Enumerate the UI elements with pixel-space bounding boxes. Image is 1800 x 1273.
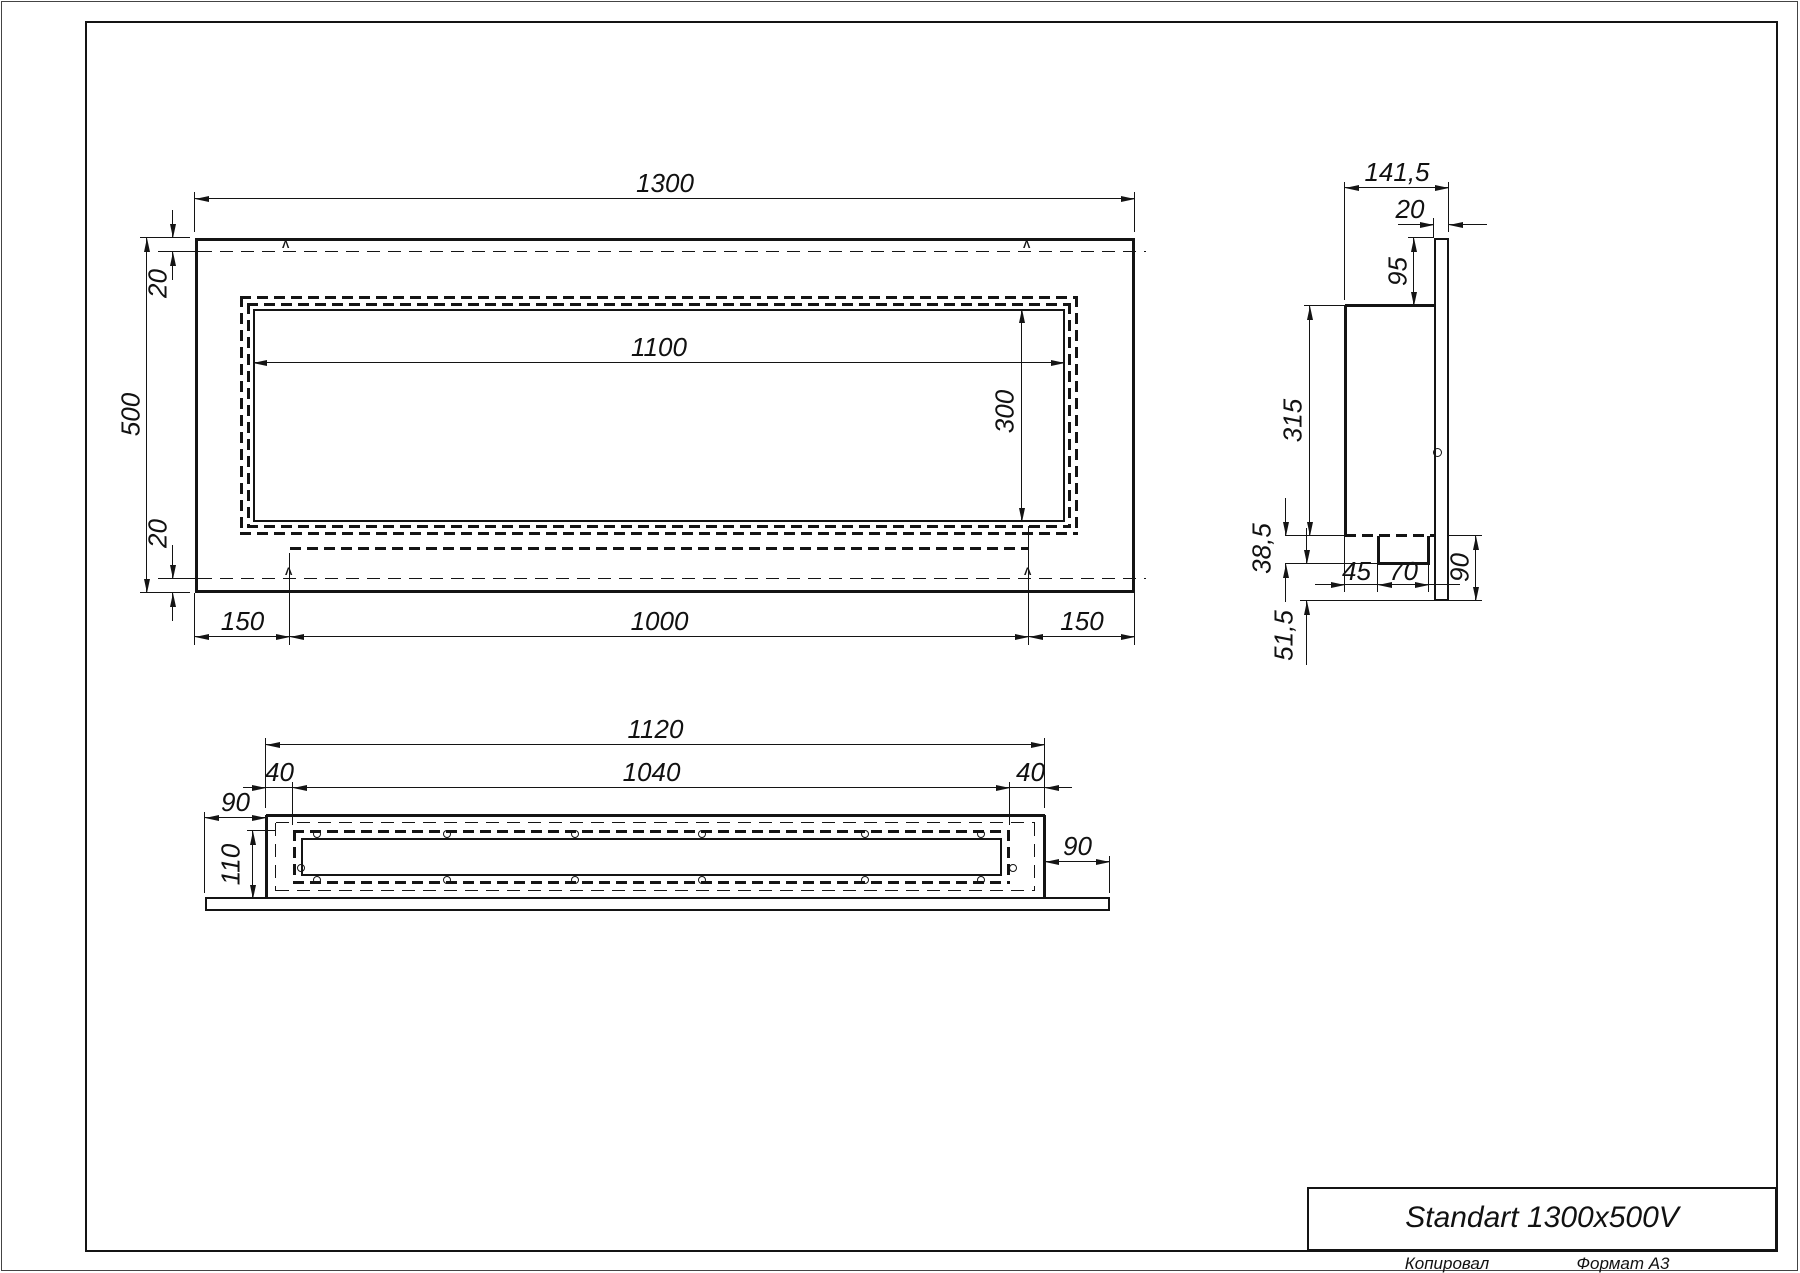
arrowhead — [1378, 582, 1392, 588]
dim-line — [1428, 564, 1429, 592]
arrowhead — [1411, 238, 1417, 252]
keyhole-mark: Λ — [285, 567, 292, 578]
hole-circle — [297, 864, 305, 872]
dim-line — [1021, 309, 1022, 522]
hidden-line — [276, 822, 1035, 823]
hidden-line — [275, 823, 276, 891]
arrowhead — [144, 238, 150, 252]
arrowhead — [1283, 564, 1289, 578]
arrowhead — [170, 565, 176, 579]
arrowhead — [1029, 634, 1043, 640]
arrowhead — [1307, 522, 1313, 536]
arrowhead — [1304, 601, 1310, 615]
arrowhead — [1015, 634, 1029, 640]
hole-circle — [698, 876, 706, 884]
hidden-line — [1034, 823, 1035, 891]
drawing-line — [1377, 536, 1380, 564]
dim-line — [253, 362, 1065, 363]
arrowhead — [1345, 185, 1359, 191]
dim-line — [1377, 564, 1378, 592]
top-flange-plate — [205, 897, 1110, 911]
dim-line — [146, 238, 147, 593]
arrowhead — [266, 742, 280, 748]
arrowhead — [1411, 292, 1417, 306]
keyhole-mark: Λ — [282, 240, 289, 251]
dim-line — [204, 812, 205, 893]
hidden-line-bold — [293, 881, 1010, 884]
arrowhead — [1121, 196, 1135, 202]
hidden-line-bold — [293, 830, 1010, 833]
hidden-line-bold — [240, 296, 1078, 299]
dim-line — [1028, 526, 1029, 645]
arrowhead — [1045, 785, 1059, 791]
hole-circle — [571, 830, 579, 838]
hidden-line — [199, 251, 1146, 252]
hidden-line-bold — [240, 532, 1078, 535]
arrowhead — [996, 785, 1010, 791]
footer-format-label: Формат А3 — [1546, 1254, 1700, 1273]
arrowhead — [1307, 306, 1313, 320]
hole-circle — [977, 876, 985, 884]
arrowhead — [252, 785, 266, 791]
hidden-line-bold — [1068, 303, 1071, 528]
dim-line — [1300, 600, 1482, 601]
arrowhead — [253, 360, 267, 366]
dim-line — [158, 251, 199, 252]
drawing-line — [266, 814, 1045, 817]
arrowhead — [170, 593, 176, 607]
front-opening-outline — [253, 309, 1065, 522]
arrowhead — [290, 634, 304, 640]
hidden-line-bold — [240, 296, 243, 535]
arrowhead — [276, 634, 290, 640]
dim-line — [243, 787, 1072, 788]
hidden-line-bold — [1345, 534, 1434, 537]
drawing-line — [1043, 815, 1046, 899]
dim-line — [1309, 306, 1310, 536]
hidden-line — [199, 578, 1146, 579]
top-opening-outline — [301, 838, 1002, 876]
hidden-line-bold — [293, 830, 296, 884]
arrowhead — [195, 196, 209, 202]
drawing-line — [265, 815, 268, 899]
hole-circle — [1433, 448, 1442, 457]
arrowhead — [1473, 587, 1479, 601]
arrowhead — [144, 579, 150, 593]
hidden-line — [276, 890, 1035, 891]
hole-circle — [861, 876, 869, 884]
drawing-line — [1377, 562, 1430, 565]
arrowhead — [1449, 222, 1463, 228]
arrowhead — [1420, 222, 1434, 228]
side-flange-plate — [1434, 238, 1449, 601]
hidden-line-bold — [247, 525, 1071, 528]
arrowhead — [1331, 582, 1345, 588]
arrowhead — [1435, 185, 1449, 191]
arrowhead — [1051, 360, 1065, 366]
arrowhead — [1415, 582, 1429, 588]
dim-line — [195, 198, 1135, 199]
arrowhead — [1473, 536, 1479, 550]
arrowhead — [293, 785, 307, 791]
arrowhead — [170, 224, 176, 238]
hole-circle — [313, 830, 321, 838]
drawing-sheet: 1300 500 20 20 1100 300 150 1000 150 141… — [0, 0, 1800, 1273]
dim-line — [195, 636, 1135, 637]
arrowhead — [252, 815, 266, 821]
dim-line — [1285, 563, 1378, 564]
dim-line — [1044, 738, 1045, 808]
hidden-line-bold — [1007, 830, 1010, 884]
hidden-line-bold — [247, 303, 1071, 306]
dim-line — [265, 738, 266, 808]
drawing-line — [1427, 536, 1430, 565]
arrowhead — [170, 252, 176, 266]
arrowhead — [195, 634, 209, 640]
footer-copied-label: Копировал — [1370, 1254, 1524, 1273]
arrowhead — [250, 831, 256, 845]
arrowhead — [1121, 634, 1135, 640]
hidden-line-bold — [290, 547, 1029, 550]
hole-circle — [313, 876, 321, 884]
hole-circle — [443, 876, 451, 884]
hole-circle — [861, 830, 869, 838]
drawing-line — [1344, 306, 1347, 536]
arrowhead — [205, 815, 219, 821]
arrowhead — [1045, 859, 1059, 865]
arrowhead — [1019, 508, 1025, 522]
hole-circle — [977, 830, 985, 838]
dim-line — [266, 744, 1045, 745]
drawing-line — [1345, 304, 1434, 307]
dim-line — [158, 578, 199, 579]
dim-line — [1345, 187, 1449, 188]
hole-circle — [1009, 864, 1017, 872]
hidden-line-bold — [247, 303, 250, 528]
dim-line — [1285, 535, 1345, 536]
arrowhead — [1283, 522, 1289, 536]
arrowhead — [1304, 550, 1310, 564]
hole-circle — [698, 830, 706, 838]
hole-circle — [443, 830, 451, 838]
arrowhead — [250, 885, 256, 899]
arrowhead — [1031, 742, 1045, 748]
keyhole-mark: Λ — [1023, 240, 1030, 251]
hidden-line-bold — [1075, 296, 1078, 535]
hole-circle — [571, 876, 579, 884]
keyhole-mark: Λ — [1024, 567, 1031, 578]
dim-line — [1344, 182, 1345, 300]
arrowhead — [1019, 309, 1025, 323]
arrowhead — [1096, 859, 1110, 865]
